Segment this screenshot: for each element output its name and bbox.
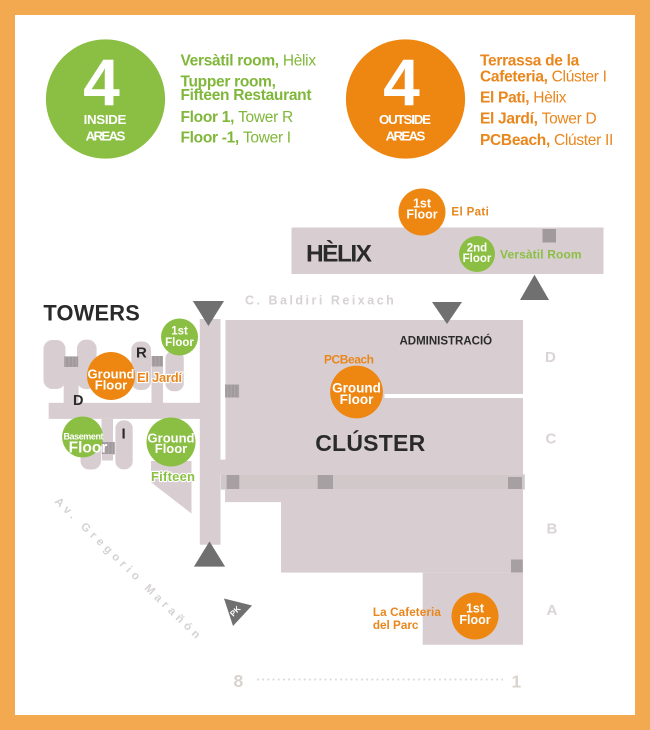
svg-text:PCBeach: PCBeach (324, 353, 374, 367)
svg-text:Floor: Floor (165, 337, 194, 349)
svg-text:1: 1 (512, 672, 522, 692)
svg-text:Versàtil room, Hèlix: Versàtil room, Hèlix (181, 52, 317, 69)
svg-text:R: R (136, 345, 147, 362)
svg-text:4: 4 (83, 45, 120, 119)
svg-text:Fifteen: Fifteen (151, 469, 195, 484)
svg-text:INSIDE: INSIDE (84, 112, 127, 127)
svg-text:Floor: Floor (340, 392, 374, 407)
svg-text:La Cafeteria: La Cafeteria (373, 606, 441, 619)
svg-text:Terrassa de la: Terrassa de la (480, 52, 580, 69)
svg-text:TOWERS: TOWERS (43, 301, 139, 326)
svg-text:A: A (547, 602, 558, 619)
svg-text:PCBeach, Clúster II: PCBeach, Clúster II (480, 132, 613, 149)
svg-text:AREAS: AREAS (386, 129, 426, 144)
svg-text:El Pati: El Pati (451, 207, 488, 219)
svg-text:D: D (73, 393, 83, 409)
svg-text:C. Baldiri Reixach: C. Baldiri Reixach (245, 294, 396, 308)
svg-text:OUTSIDE: OUTSIDE (379, 112, 431, 127)
svg-text:Floor: Floor (459, 613, 490, 627)
svg-text:Floor 1, Tower R: Floor 1, Tower R (181, 109, 293, 126)
svg-text:Floor: Floor (155, 441, 188, 456)
svg-text:D: D (545, 349, 556, 366)
svg-text:Fifteen Restaurant: Fifteen Restaurant (181, 87, 312, 104)
svg-text:I: I (122, 426, 126, 443)
svg-text:El Jardí, Tower D: El Jardí, Tower D (480, 111, 596, 128)
svg-text:4: 4 (383, 45, 420, 119)
svg-text:HÈLIX: HÈLIX (306, 240, 373, 268)
svg-text:Versàtil Room: Versàtil Room (500, 248, 582, 262)
svg-text:El Pati, Hèlix: El Pati, Hèlix (480, 90, 567, 107)
svg-text:B: B (547, 521, 558, 538)
svg-text:CLÚSTER: CLÚSTER (315, 429, 425, 456)
svg-text:1st: 1st (171, 326, 188, 338)
svg-text:El Jardí: El Jardí (137, 370, 182, 385)
svg-text:Floor: Floor (69, 440, 108, 457)
svg-text:Floor: Floor (463, 253, 492, 265)
svg-text:C: C (546, 431, 557, 448)
svg-text:Floor: Floor (406, 207, 437, 221)
svg-text:8: 8 (234, 671, 244, 691)
svg-text:Floor: Floor (95, 377, 128, 392)
svg-text:Floor -1, Tower I: Floor -1, Tower I (181, 129, 291, 146)
svg-text:Cafeteria, Clúster I: Cafeteria, Clúster I (480, 68, 607, 85)
svg-text:ADMINISTRACIÓ: ADMINISTRACIÓ (400, 335, 493, 348)
svg-text:AREAS: AREAS (86, 129, 126, 144)
svg-text:del Parc: del Parc (373, 619, 419, 632)
